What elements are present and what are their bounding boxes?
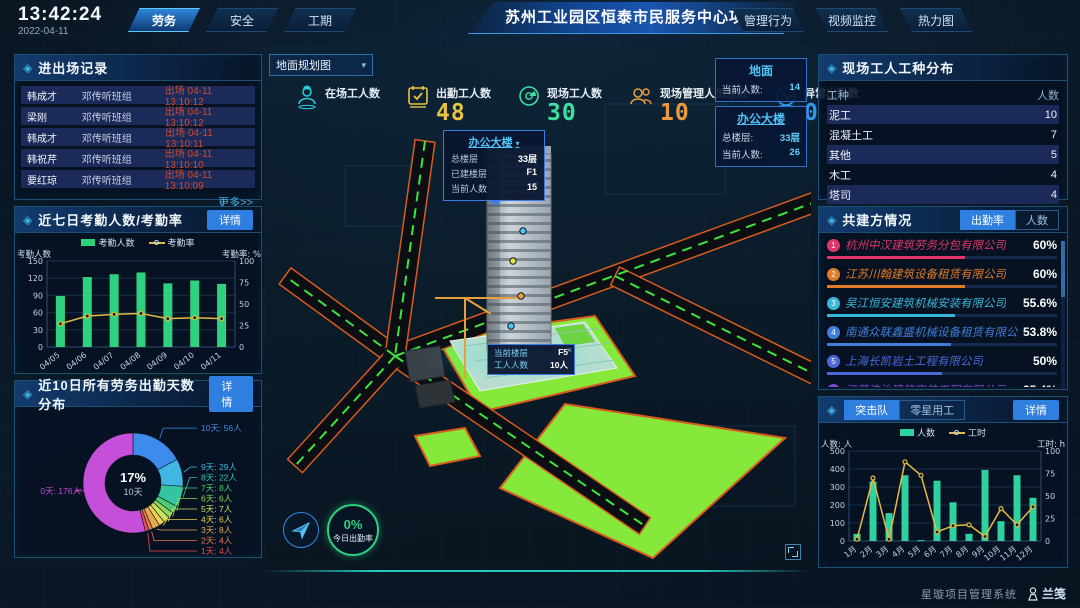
partner-row[interactable]: 5上海长凯岩土工程有限公司50%: [827, 353, 1057, 375]
company-name: 上海长凯岩土工程有限公司: [845, 353, 983, 369]
svg-text:10月: 10月: [982, 544, 1002, 562]
team-name: 邓传听班组: [82, 109, 165, 124]
popup-row: 当前人数15: [451, 182, 537, 195]
people-icon: [628, 84, 654, 115]
legend-label: 人数: [917, 428, 935, 438]
svg-text:04/07: 04/07: [92, 350, 116, 371]
stat-value: 30: [547, 100, 577, 126]
worker-type: 木工: [829, 167, 851, 183]
svg-text:3天: 8人: 3天: 8人: [201, 525, 233, 535]
assault-bar-line-chart: 010020030040050002550751001月2月3月4月5月6月7月…: [819, 439, 1067, 565]
panel-title: 现场工人工种分布: [842, 58, 954, 77]
layer-select-value: 地面规划图: [276, 57, 331, 73]
rank-badge: 1: [827, 239, 840, 252]
worker-types-panel: ◈ 现场工人工种分布 工种人数 泥工10混凝土工7其他5木工4塔司4: [818, 54, 1068, 200]
company-name: 杭州中汉建筑劳务分包有限公司: [845, 237, 1006, 253]
worker-type-row: 塔司4: [827, 185, 1059, 204]
record-row: 韩成才邓传听班组出场 04-11 13:10:12: [21, 86, 255, 104]
office-card-row: 总楼层:33层: [722, 130, 800, 144]
panel-title: 近七日考勤人数/考勤率: [38, 210, 183, 229]
panel-title: 共建方情况: [842, 210, 912, 229]
line-legend-swatch: [149, 242, 165, 244]
worker-type-row: 混凝土工7: [827, 125, 1059, 144]
compass-icon: [290, 519, 312, 541]
progress-track: [827, 372, 1057, 375]
svg-text:0: 0: [1045, 537, 1050, 546]
entry-exit-panel: ◈ 进出场记录 韩成才邓传听班组出场 04-11 13:10:12梁刚邓传听班组…: [14, 54, 262, 200]
stat-worker: 在场工人数: [295, 84, 380, 115]
tooltip-row: 工人人数10人: [494, 359, 568, 371]
svg-text:考勤人数: 考勤人数: [17, 249, 52, 260]
worker-count: 7: [1051, 129, 1057, 141]
chart-legend: 人数 工时: [819, 425, 1067, 439]
panel-header: ◈ 近10日所有劳务出勤天数分布 详情: [15, 381, 261, 407]
tab-management-behavior[interactable]: 管理行为: [732, 8, 804, 32]
svg-text:04/10: 04/10: [172, 350, 196, 371]
worker-count: 4: [1051, 169, 1057, 181]
office-card-title[interactable]: 办公大楼: [722, 110, 800, 127]
svg-text:300: 300: [830, 483, 845, 492]
progress-track: [827, 256, 1057, 259]
diamond-icon: ◈: [827, 61, 836, 75]
svg-text:200: 200: [830, 501, 845, 510]
progress-track: [827, 314, 1057, 317]
svg-text:9天: 29人: 9天: 29人: [201, 462, 237, 472]
panel-header: ◈ 现场工人工种分布: [819, 55, 1067, 81]
tab-video-monitor[interactable]: 视频监控: [816, 8, 888, 32]
company-name: 南通众联鑫盛机械设备租赁有限公司: [845, 324, 1019, 340]
svg-text:0天: 176人: 0天: 176人: [40, 486, 81, 496]
svg-text:100: 100: [830, 519, 845, 528]
partners-tabs: 出勤率 人数: [960, 210, 1059, 230]
attendance-rate-value: 60%: [1029, 238, 1057, 252]
worker-type: 泥工: [829, 107, 851, 123]
svg-text:工时: h: 工时: h: [1037, 439, 1065, 450]
tab-heatmap[interactable]: 热力图: [900, 8, 972, 32]
worker-icon: [295, 84, 319, 115]
svg-text:10天: 56人: 10天: 56人: [201, 423, 242, 433]
brand-logo: 兰笺: [1027, 585, 1066, 602]
assault-tabs: 突击队 零星用工: [844, 400, 965, 420]
progress-fill: [827, 314, 955, 317]
dial-icon: [517, 84, 541, 115]
tab-safety[interactable]: 安全: [206, 8, 278, 32]
svg-text:75: 75: [1045, 470, 1055, 479]
tab-headcount[interactable]: 人数: [1015, 210, 1059, 230]
progress-fill: [827, 343, 951, 346]
partner-row[interactable]: 4南通众联鑫盛机械设备租赁有限公司53.8%: [827, 324, 1057, 346]
chevron-down-icon: ▾: [361, 60, 366, 71]
stat-dial: 现场工人数30: [517, 84, 602, 125]
compass-control[interactable]: [283, 512, 319, 548]
attendance-days-donut-chart: 10天: 56人9天: 29人8天: 22人7天: 8人6天: 6人5天: 7人…: [15, 407, 263, 557]
svg-text:04/08: 04/08: [119, 350, 143, 371]
popup-row: 已建楼层F1: [451, 167, 537, 180]
tooltip-row: 当前楼层F5: [494, 347, 568, 359]
svg-text:04/09: 04/09: [145, 350, 169, 371]
svg-text:50: 50: [239, 300, 249, 309]
progress-fill: [827, 256, 965, 259]
panel-header: ◈ 共建方情况 出勤率 人数: [819, 207, 1067, 233]
worker-type-row: 木工4: [827, 165, 1059, 184]
svg-text:04/05: 04/05: [38, 350, 62, 371]
attendance-chart-panel: ◈ 近七日考勤人数/考勤率 详情 考勤人数 考勤率 03060901201500…: [14, 206, 262, 374]
rank-badge: 2: [827, 268, 840, 281]
fullscreen-toggle[interactable]: [785, 544, 801, 560]
stat-label: 出勤工人数: [436, 88, 491, 100]
svg-text:30: 30: [33, 326, 43, 335]
stat-label: 现场工人数: [547, 88, 602, 100]
tab-labor[interactable]: 劳务: [128, 8, 200, 32]
svg-text:5天: 7人: 5天: 7人: [201, 504, 233, 514]
diamond-icon: ◈: [23, 387, 32, 401]
worker-name: 梁刚: [27, 109, 82, 124]
rank-badge: 6: [827, 384, 840, 388]
attendance-rate-value: 60%: [1029, 267, 1057, 281]
ground-card-title: 地面: [722, 62, 800, 79]
panel-header: ◈ 近七日考勤人数/考勤率 详情: [15, 207, 261, 233]
svg-text:90: 90: [33, 291, 43, 300]
company-name: 江苏川翰建筑设备租赁有限公司: [845, 266, 1006, 282]
team-name: 邓传听班组: [82, 151, 165, 166]
detail-button[interactable]: 详情: [207, 210, 253, 230]
record-row: 韩成才邓传听班组出场 04-11 13:10:11: [21, 128, 255, 146]
partner-row[interactable]: 6江苏浩治建筑安装工程有限公司35.4%: [827, 382, 1057, 387]
svg-text:04/06: 04/06: [65, 350, 89, 371]
svg-text:17%: 17%: [120, 470, 146, 485]
worker-type: 其他: [829, 147, 851, 163]
svg-text:2天: 4人: 2天: 4人: [201, 536, 233, 546]
progress-track: [827, 285, 1057, 288]
svg-text:0: 0: [38, 343, 43, 352]
building-popup: 办公大楼▾ 总楼层33层已建楼层F1当前人数15: [443, 130, 545, 201]
panel-title: 进出场记录: [38, 58, 108, 77]
stat-value: 48: [436, 100, 466, 126]
robot-icon: [1027, 587, 1039, 601]
partners-panel: ◈ 共建方情况 出勤率 人数 1杭州中汉建筑劳务分包有限公司60%2江苏川翰建筑…: [818, 206, 1068, 390]
svg-text:50: 50: [1045, 492, 1055, 501]
scrollbar[interactable]: [1061, 241, 1065, 389]
record-row: 韩祝芹邓传听班组出场 04-11 13:10:10: [21, 149, 255, 167]
svg-text:12月: 12月: [1014, 544, 1034, 562]
record-row: 梁刚邓传听班组出场 04-11 13:10:12: [21, 107, 255, 125]
svg-text:0: 0: [239, 343, 244, 352]
svg-text:04/11: 04/11: [199, 350, 223, 371]
rank-badge: 3: [827, 297, 840, 310]
progress-fill: [827, 372, 942, 375]
svg-text:考勤率: %: 考勤率: %: [222, 249, 261, 260]
worker-name: 韩成才: [27, 130, 82, 145]
brand-name: 兰笺: [1042, 585, 1066, 602]
ground-card-row: 当前人数:14: [722, 82, 800, 96]
svg-text:11月: 11月: [998, 544, 1018, 562]
legend-label: 考勤人数: [98, 238, 134, 248]
assault-team-panel: ◈ 突击队 零星用工 详情 人数 工时 01002003004005000255…: [818, 396, 1068, 568]
popup-row: 总楼层33层: [451, 152, 537, 165]
worker-name: 要红琼: [27, 172, 82, 187]
svg-text:6天: 6人: 6天: 6人: [201, 494, 233, 504]
team-name: 邓传听班组: [82, 88, 165, 103]
partner-row[interactable]: 1杭州中汉建筑劳务分包有限公司60%: [827, 237, 1057, 259]
team-name: 邓传听班组: [82, 172, 165, 187]
svg-text:5月: 5月: [906, 544, 922, 559]
svg-text:1天: 4人: 1天: 4人: [201, 546, 233, 556]
chart-legend: 考勤人数 考勤率: [15, 235, 261, 249]
tab-assault-team[interactable]: 突击队: [844, 400, 899, 420]
tab-schedule[interactable]: 工期: [284, 8, 356, 32]
tab-attendance-rate[interactable]: 出勤率: [960, 210, 1015, 230]
record-row: 要红琼邓传听班组出场 04-11 13:10:09: [21, 170, 255, 188]
svg-text:3月: 3月: [874, 544, 890, 559]
worker-type: 塔司: [829, 187, 851, 203]
today-attendance-badge: 0% 今日出勤率: [327, 504, 379, 556]
diamond-icon: ◈: [23, 213, 32, 227]
page-title: 苏州工业园区恒泰市民服务中心项目: [505, 9, 761, 26]
svg-text:1月: 1月: [842, 544, 858, 559]
office-card-row: 当前人数:26: [722, 147, 800, 161]
attendance-rate-value: 35.4%: [1019, 383, 1057, 387]
attendance-rate-label: 今日出勤率: [333, 533, 373, 544]
legend-label: 工时: [968, 428, 986, 438]
close-icon[interactable]: ×: [567, 345, 572, 355]
entry-exit-list: 韩成才邓传听班组出场 04-11 13:10:12梁刚邓传听班组出场 04-11…: [15, 81, 261, 193]
svg-text:60: 60: [33, 309, 43, 318]
legend-label: 考勤率: [168, 238, 195, 248]
top-bar: 13:42:24 2022-04-11 劳务 安全 工期 苏州工业园区恒泰市民服…: [0, 0, 1080, 42]
company-name: 江苏浩治建筑安装工程有限公司: [845, 382, 1006, 387]
partners-list: 1杭州中汉建筑劳务分包有限公司60%2江苏川翰建筑设备租赁有限公司60%3吴江恒…: [819, 233, 1067, 387]
line-legend-swatch: [949, 432, 965, 434]
map-baseline-glow: [265, 570, 811, 572]
svg-text:400: 400: [830, 465, 845, 474]
worker-type: 混凝土工: [829, 127, 873, 143]
svg-text:人数: 人: 人数: 人: [821, 439, 853, 450]
bar-legend-swatch: [900, 429, 914, 436]
site-3d-map[interactable]: 地面规划图 ▾ 在场工人数出勤工人数48现场工人数30现场管理人员总数10异常出…: [265, 46, 811, 570]
progress-fill: [827, 285, 965, 288]
svg-text:10天: 10天: [123, 487, 142, 497]
stat-value: 10: [660, 100, 690, 126]
system-name: 星璇项目管理系统: [921, 586, 1017, 602]
svg-text:25: 25: [1045, 515, 1055, 524]
svg-text:7月: 7月: [938, 544, 954, 559]
dashboard-screen: 13:42:24 2022-04-11 劳务 安全 工期 苏州工业园区恒泰市民服…: [0, 0, 1080, 608]
worker-types-table: 泥工10混凝土工7其他5木工4塔司4: [827, 105, 1059, 204]
exit-event: 出场 04-11 13:10:09: [165, 166, 249, 192]
svg-text:6月: 6月: [922, 544, 938, 559]
company-name: 吴江恒安建筑机械安装有限公司: [845, 295, 1006, 311]
panel-header: ◈ 突击队 零星用工 详情: [819, 397, 1067, 423]
svg-text:4天: 6人: 4天: 6人: [201, 515, 233, 525]
worker-types-header: 工种人数: [827, 85, 1059, 105]
distribution-panel: ◈ 近10日所有劳务出勤天数分布 详情 10天: 56人9天: 29人8天: 2…: [14, 380, 262, 558]
tab-casual-labor[interactable]: 零星用工: [899, 400, 965, 420]
svg-text:0: 0: [840, 537, 845, 546]
attendance-rate-value: 55.6%: [1019, 296, 1057, 310]
progress-track: [827, 343, 1057, 346]
ground-card: 地面 当前人数:14: [715, 58, 807, 102]
partner-row[interactable]: 2江苏川翰建筑设备租赁有限公司60%: [827, 266, 1057, 288]
team-name: 邓传听班组: [82, 130, 165, 145]
svg-text:2月: 2月: [858, 544, 874, 559]
diamond-icon: ◈: [827, 403, 836, 417]
svg-text:25: 25: [239, 322, 249, 331]
time-text: 13:42:24: [18, 5, 102, 26]
calendar-icon: [406, 84, 430, 115]
worker-count: 10: [1045, 109, 1057, 121]
svg-text:75: 75: [239, 279, 249, 288]
rank-badge: 4: [827, 326, 840, 339]
diamond-icon: ◈: [827, 213, 836, 227]
stat-calendar: 出勤工人数48: [406, 84, 491, 125]
office-building-card: 办公大楼 总楼层:33层 当前人数:26: [715, 106, 807, 167]
stat-label: 在场工人数: [325, 88, 380, 100]
worker-type-row: 其他5: [827, 145, 1059, 164]
diamond-icon: ◈: [23, 61, 32, 75]
worker-name: 韩成才: [27, 88, 82, 103]
partner-row[interactable]: 3吴江恒安建筑机械安装有限公司55.6%: [827, 295, 1057, 317]
panel-header: ◈ 进出场记录: [15, 55, 261, 81]
bar-legend-swatch: [81, 239, 95, 246]
attendance-rate-value: 50%: [1029, 354, 1057, 368]
attendance-rate-value: 53.8%: [1019, 325, 1057, 339]
date-text: 2022-04-11: [18, 26, 102, 37]
clock: 13:42:24 2022-04-11: [18, 5, 102, 37]
svg-text:8月: 8月: [954, 544, 970, 559]
attendance-bar-line-chart: 0306090120150025507510004/0504/0604/0704…: [15, 249, 263, 371]
worker-count: 4: [1051, 189, 1057, 201]
footer: 星璇项目管理系统 兰笺: [921, 585, 1066, 602]
svg-text:4月: 4月: [890, 544, 906, 559]
attendance-rate-value: 0%: [344, 517, 363, 532]
worker-type-row: 泥工10: [827, 105, 1059, 124]
worker-name: 韩祝芹: [27, 151, 82, 166]
svg-text:120: 120: [28, 274, 43, 283]
floor-tooltip: × 当前楼层F5工人人数10人: [487, 344, 575, 375]
chevron-down-icon: ▾: [515, 139, 519, 148]
detail-button[interactable]: 详情: [1013, 400, 1059, 420]
rank-badge: 5: [827, 355, 840, 368]
svg-text:8天: 22人: 8天: 22人: [201, 473, 237, 483]
building-popup-title[interactable]: 办公大楼▾: [451, 134, 537, 150]
layer-select-dropdown[interactable]: 地面规划图 ▾: [269, 54, 373, 76]
worker-count: 5: [1051, 149, 1057, 161]
svg-text:7天: 8人: 7天: 8人: [201, 483, 233, 493]
